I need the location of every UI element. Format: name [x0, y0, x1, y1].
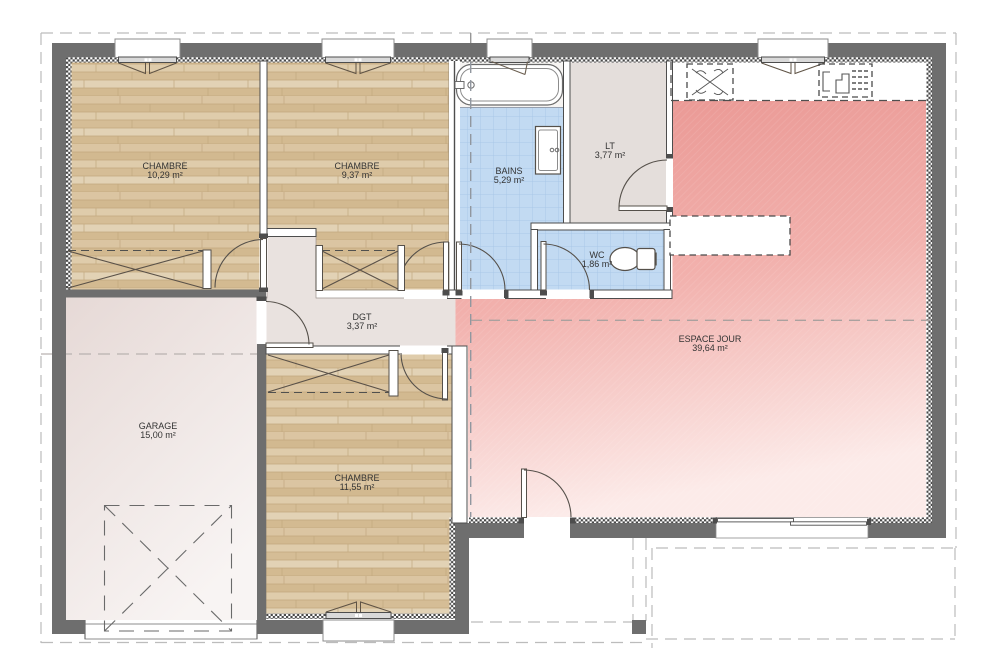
svg-text:1,86 m²: 1,86 m²: [582, 259, 613, 269]
svg-text:11,55 m²: 11,55 m²: [340, 482, 375, 492]
svg-text:15,00 m²: 15,00 m²: [140, 430, 176, 440]
svg-text:3,77 m²: 3,77 m²: [595, 150, 626, 160]
svg-text:3,37 m²: 3,37 m²: [347, 321, 378, 331]
svg-text:9,37 m²: 9,37 m²: [342, 170, 373, 180]
svg-text:39,64 m²: 39,64 m²: [692, 343, 728, 353]
svg-text:5,29 m²: 5,29 m²: [494, 175, 525, 185]
svg-text:10,29 m²: 10,29 m²: [147, 170, 183, 180]
